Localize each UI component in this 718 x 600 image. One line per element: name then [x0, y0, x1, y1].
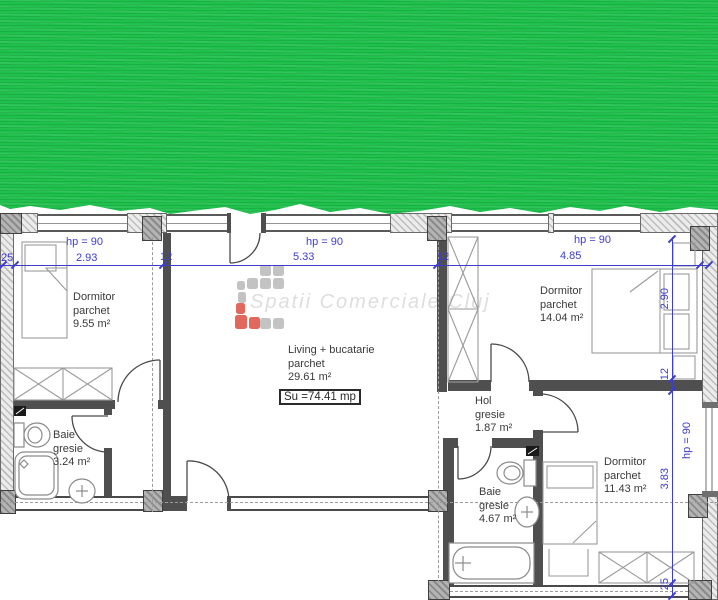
parapet-label-1: hp = 90 [66, 236, 103, 248]
room-label-baie2: Baie gresie 4.67 m² [479, 486, 516, 527]
room-finish: parchet [73, 305, 115, 319]
toilet1-bowl-inner [28, 427, 42, 443]
bed3 [543, 462, 597, 544]
logo-square [238, 292, 246, 303]
chair [549, 549, 588, 576]
window-bottom-bath1 [14, 496, 143, 511]
toilet2-bowl-inner [504, 466, 520, 480]
dim-label-12-left: 12 [160, 251, 172, 263]
shower [15, 452, 58, 499]
section-line-horizontal [0, 502, 718, 503]
room-label-dormitor1: Dormitor parchet 9.55 m² [73, 291, 115, 332]
door-arc-entrance [187, 461, 229, 501]
wardrobe3-x [599, 552, 647, 583]
dim-label-12-right: 12 [437, 251, 449, 263]
room-finish: gresie [475, 409, 512, 423]
room-finish: parchet [288, 358, 375, 372]
logo-square-red [236, 303, 245, 314]
dim-label-383: 3.83 [659, 468, 671, 489]
logo-square [273, 265, 284, 276]
door-arc-terrace [230, 233, 260, 263]
shower-inner [19, 456, 54, 495]
window-living-left [167, 214, 227, 232]
window-living-right [266, 214, 390, 232]
dim-label-25-bottom: 25 [659, 578, 671, 590]
column [428, 580, 450, 600]
door-jamb [158, 400, 163, 409]
wall-bedroom2-bottom [529, 380, 702, 391]
bathtub [449, 543, 534, 583]
room-area: 9.55 m² [73, 318, 115, 332]
room-finish: gresie [479, 500, 516, 514]
column [427, 216, 447, 241]
room-name: Dormitor [73, 291, 115, 305]
parapet-label-3: hp = 90 [574, 234, 611, 246]
room-name: Dormitor [540, 285, 583, 299]
toilet1-bowl [24, 423, 50, 447]
dim-label-533: 5.33 [293, 251, 314, 263]
door-arc-bedroom3 [540, 394, 578, 432]
column [688, 494, 708, 518]
window-bottom-living [229, 496, 428, 511]
room-area: 1.87 m² [475, 422, 512, 436]
room-label-dormitor2: Dormitor parchet 14.04 m² [540, 285, 583, 326]
wall-bottom-segment [163, 496, 187, 511]
door-jamb [533, 391, 543, 396]
total-area-box: Su =74.41 mp [279, 389, 361, 405]
dim-label-293: 2.93 [76, 252, 97, 264]
wall-hol-bath2 [443, 438, 458, 448]
furniture [14, 237, 697, 583]
room-label-hol: Hol gresie 1.87 m² [475, 395, 512, 436]
dim-label-12-vert: 12 [659, 368, 671, 380]
column [0, 213, 22, 234]
logo-square-red [249, 317, 260, 329]
wall-right-exterior [702, 226, 718, 600]
wardrobe1-x [63, 368, 112, 400]
room-area: 11.43 m² [604, 483, 647, 497]
room-name: Baie [479, 486, 516, 500]
column [690, 226, 710, 251]
door-jamb [227, 496, 231, 511]
wall-bedroom1-living [163, 233, 171, 496]
logo-square [273, 318, 284, 329]
room-finish: gresie [53, 443, 90, 457]
parapet-label-4: hp = 90 [681, 422, 693, 459]
wardrobe1-x [14, 368, 63, 400]
floor-plan-page: Spatii Comerciale Cluj [0, 0, 718, 600]
wall-bath1-living [104, 448, 112, 496]
watermark-text: Spatii Comerciale Cluj [250, 291, 491, 314]
wall-hol-bedroom3 [533, 430, 543, 585]
dim-label-25-left: 25 [1, 252, 13, 264]
section-line-vertical [152, 237, 153, 512]
toilet2-bowl [497, 462, 523, 484]
wardrobe2-x [448, 309, 478, 382]
bed1-fold [46, 268, 67, 291]
wardrobe2-x [448, 309, 478, 382]
door-jamb [227, 213, 231, 233]
door-arc-bedroom2 [491, 344, 529, 382]
parapet-label-2: hp = 90 [306, 236, 343, 248]
green-redaction-scribble [0, 0, 718, 218]
bed1 [22, 242, 67, 338]
room-label-living: Living + bucatarie parchet 29.61 m² [288, 344, 375, 385]
column [143, 490, 163, 512]
wardrobe3 [599, 552, 694, 583]
wardrobe1-x [63, 368, 112, 400]
bed2 [592, 269, 697, 353]
room-name: Dormitor [604, 456, 647, 470]
wardrobe1-x [14, 368, 63, 400]
wall-hol-bath2 [492, 438, 533, 448]
room-finish: parchet [604, 470, 647, 484]
room-name: Living + bucatarie [288, 344, 375, 358]
shower-drain [20, 460, 28, 468]
room-area: 3.24 m² [53, 456, 90, 470]
room-label-baie1: Baie gresie 3.24 m² [53, 429, 90, 470]
logo-square-red [235, 315, 247, 329]
logo-square [260, 318, 271, 329]
wall-bedroom1-bath1 [14, 400, 115, 409]
room-name: Baie [53, 429, 90, 443]
room-area: 4.67 m² [479, 513, 516, 527]
room-finish: parchet [540, 299, 583, 313]
logo-square [273, 278, 284, 289]
dimension-line-horizontal [0, 265, 710, 266]
bed1-pillow [25, 245, 56, 271]
door-arc-bedroom1 [118, 360, 160, 402]
logo-square [260, 278, 271, 289]
door-jamb [261, 213, 266, 233]
wall-bedroom2-bottom [448, 380, 491, 391]
wall-bath2-left [443, 448, 454, 585]
door-jamb [104, 407, 112, 415]
dimension-line-vertical [672, 237, 673, 598]
bed3-fold [573, 521, 596, 543]
window-bedroom2-right [554, 214, 640, 232]
wardrobe3-x [599, 552, 647, 583]
dim-label-485: 4.85 [560, 250, 581, 262]
door-arc-bath2 [458, 446, 491, 479]
window-bedroom2-left [452, 214, 548, 232]
window-bedroom1 [38, 214, 127, 232]
bed2-fold [630, 271, 658, 292]
bathtub-inner [453, 547, 530, 579]
wardrobe1 [14, 368, 112, 400]
bed2-pillow [664, 314, 689, 349]
dim-label-290: 2.90 [659, 288, 671, 309]
section-line-horizontal [450, 591, 688, 592]
logo-square [247, 278, 258, 289]
logo-square [237, 281, 245, 290]
room-area: 14.04 m² [540, 312, 583, 326]
column [688, 580, 712, 600]
toilet1-tank [14, 423, 24, 447]
section-line-vertical [438, 237, 439, 583]
room-area: 29.61 m² [288, 371, 375, 385]
room-label-dormitor3: Dormitor parchet 11.43 m² [604, 456, 647, 497]
logo-square [260, 265, 271, 276]
room-name: Hol [475, 395, 512, 409]
bed3-pillow [547, 466, 593, 488]
